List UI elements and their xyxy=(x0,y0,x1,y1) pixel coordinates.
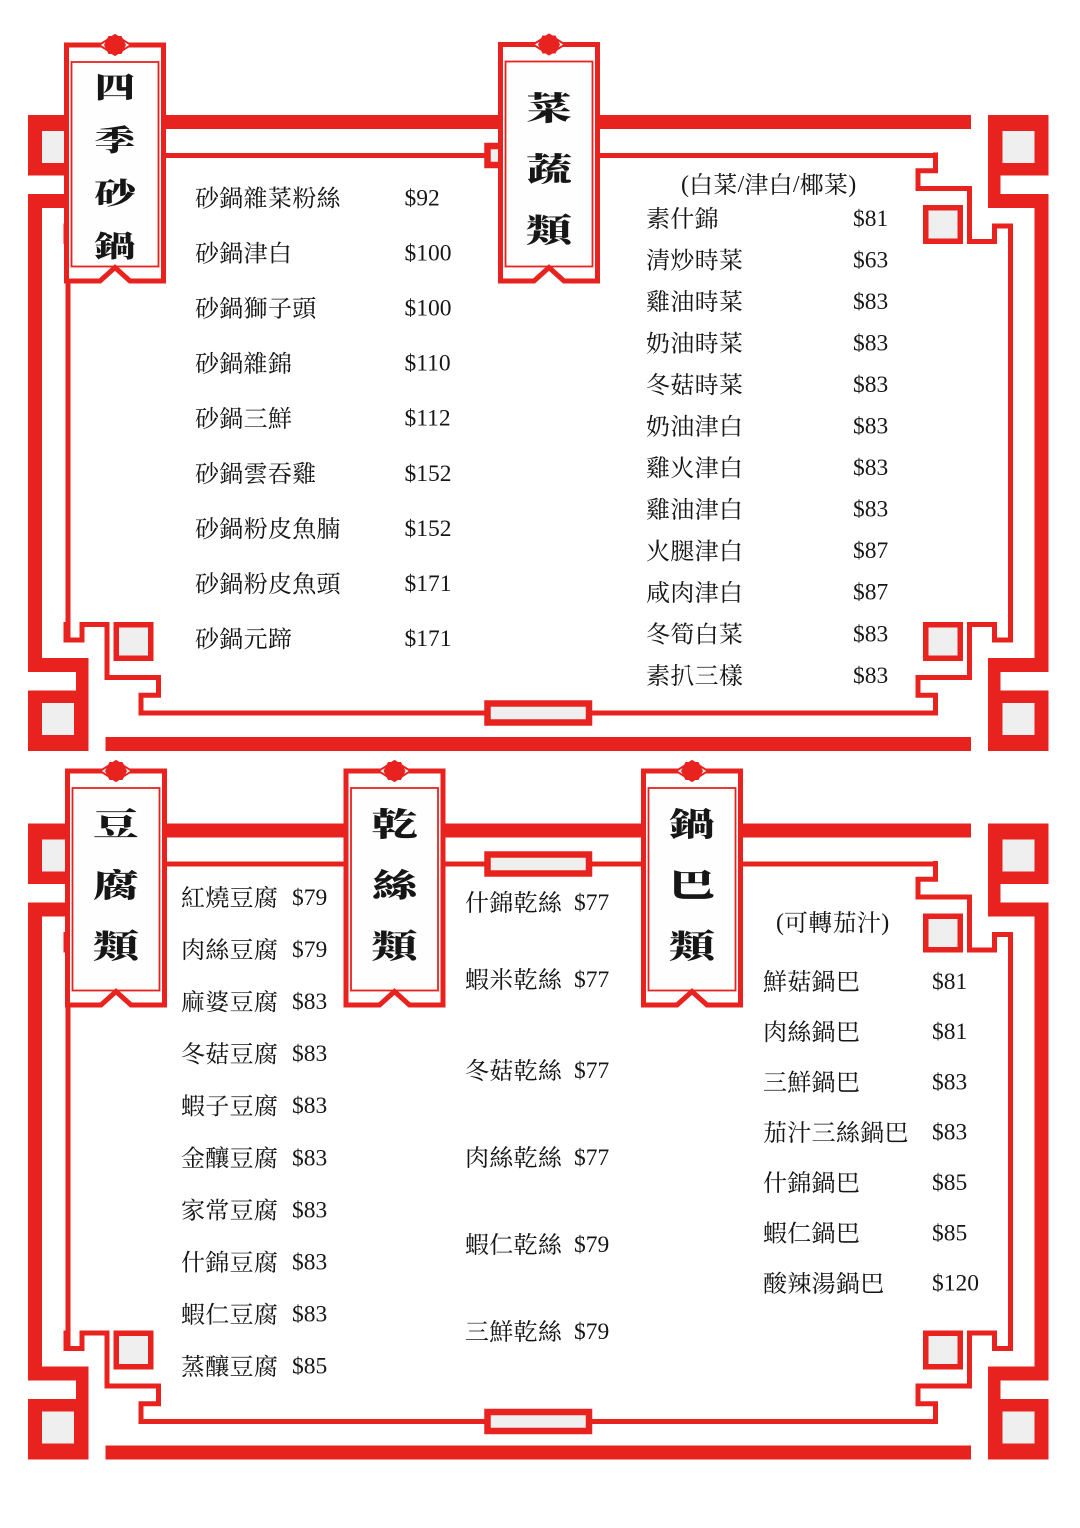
svg-text:$77: $77 xyxy=(574,967,610,993)
svg-text:$83: $83 xyxy=(853,497,888,523)
svg-text:$83: $83 xyxy=(853,289,888,315)
svg-text:$171: $171 xyxy=(405,571,452,597)
svg-text:$120: $120 xyxy=(932,1271,979,1297)
svg-text:$83: $83 xyxy=(292,1041,327,1067)
svg-text:$83: $83 xyxy=(853,330,888,356)
svg-text:$100: $100 xyxy=(405,295,452,321)
svg-text:$83: $83 xyxy=(853,455,888,481)
svg-text:$83: $83 xyxy=(292,1302,327,1328)
svg-text:$83: $83 xyxy=(932,1069,967,1095)
svg-text:$83: $83 xyxy=(292,989,327,1015)
svg-text:$83: $83 xyxy=(932,1120,967,1146)
svg-text:$152: $152 xyxy=(405,516,452,542)
svg-text:$77: $77 xyxy=(574,1145,610,1171)
svg-text:$83: $83 xyxy=(853,372,888,398)
svg-text:): ) xyxy=(848,172,856,198)
svg-text:): ) xyxy=(881,910,889,936)
svg-text:$79: $79 xyxy=(574,1319,609,1345)
svg-text:$83: $83 xyxy=(292,1093,327,1119)
svg-text:$83: $83 xyxy=(853,621,888,647)
svg-text:$92: $92 xyxy=(405,185,440,211)
svg-text:$63: $63 xyxy=(853,247,888,273)
svg-text:$83: $83 xyxy=(292,1197,327,1223)
svg-text:$79: $79 xyxy=(292,937,327,963)
svg-text:$83: $83 xyxy=(292,1249,327,1275)
svg-text:$79: $79 xyxy=(292,885,327,911)
svg-text:$85: $85 xyxy=(932,1170,967,1196)
svg-text:$83: $83 xyxy=(292,1145,327,1171)
svg-text:$77: $77 xyxy=(574,890,610,916)
svg-text:$171: $171 xyxy=(405,626,452,652)
svg-text:$81: $81 xyxy=(932,969,967,995)
svg-text:$100: $100 xyxy=(405,240,452,266)
svg-text:$77: $77 xyxy=(574,1058,610,1084)
svg-text:$87: $87 xyxy=(853,580,889,606)
svg-text:$81: $81 xyxy=(932,1019,967,1045)
svg-text:$81: $81 xyxy=(853,206,888,232)
svg-text:$112: $112 xyxy=(405,406,451,432)
svg-text:(: ( xyxy=(681,172,689,198)
svg-text:$85: $85 xyxy=(292,1354,327,1380)
svg-text:$110: $110 xyxy=(405,351,451,377)
svg-text:(: ( xyxy=(776,910,784,936)
svg-text:/: / xyxy=(738,172,745,198)
svg-text:$152: $152 xyxy=(405,461,452,487)
svg-text:$79: $79 xyxy=(574,1232,609,1258)
svg-text:$87: $87 xyxy=(853,538,889,564)
svg-text:$83: $83 xyxy=(853,414,888,440)
svg-text:$83: $83 xyxy=(853,663,888,689)
svg-text:$85: $85 xyxy=(932,1220,967,1246)
svg-text:/: / xyxy=(793,172,800,198)
